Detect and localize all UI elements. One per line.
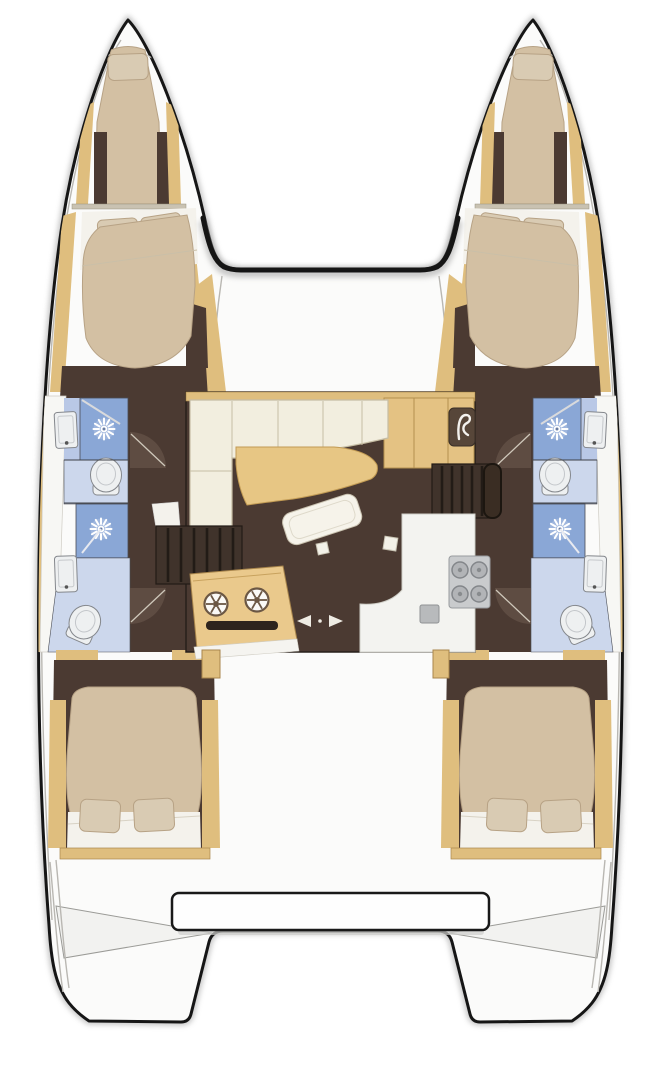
stbd-fwd-washbasin-icon [583, 411, 607, 448]
port-forepeak-pillow [108, 53, 149, 80]
stove-burner-icon-2 [471, 562, 487, 578]
stbd-forepeak [475, 47, 589, 210]
faucet-icon [449, 408, 475, 446]
port-aft-washbasin-icon [54, 556, 77, 593]
stbd-forward-bulkhead [475, 204, 589, 209]
starboard-stairs-handrail [484, 464, 501, 518]
stbd-aft-rail-left [595, 700, 613, 848]
stbd-aft-pillow-right [486, 798, 528, 832]
port-fwd-toilet-icon [91, 458, 122, 495]
port-aft-rail-left [48, 700, 66, 848]
stbd-fwd-toilet-icon [540, 458, 571, 495]
stbd-heads [473, 396, 625, 652]
saloon [152, 392, 501, 678]
aux-sink [420, 605, 439, 623]
port-aft-cabin-aft-wall [60, 848, 210, 859]
stbd-forepeak-pillow [513, 53, 554, 80]
floor-plan-svg [0, 0, 661, 1080]
port-fwd-shower-head-icon [94, 419, 115, 440]
door-post-port [202, 650, 220, 678]
galley-sink-unit [190, 566, 299, 659]
catamaran-floor-plan [0, 0, 661, 1080]
stbd-fwd-double-berth [466, 215, 579, 368]
door-post-starboard [433, 650, 449, 678]
stbd-aft-washbasin-icon [583, 556, 606, 593]
forward-crossbeam [203, 218, 458, 270]
stove-burner-icon-4 [471, 586, 487, 602]
stbd-aft-cabin-aft-wall [451, 848, 601, 859]
stbd-aft-pillow-left [540, 799, 582, 833]
sink-drain-icon-2 [246, 589, 269, 612]
stove-burner-icon-3 [452, 586, 468, 602]
stbd-aft-rail-right [441, 700, 459, 848]
port-fwd-washbasin-icon [54, 411, 78, 448]
port-aft-double-berth [67, 687, 202, 816]
cockpit-bench-seat [172, 893, 489, 930]
port-forepeak-locker-left [94, 132, 107, 204]
port-forepeak [72, 47, 186, 210]
galley-front-slot [206, 621, 278, 630]
four-burner-stove [449, 556, 490, 608]
port-forward-bulkhead [72, 204, 186, 209]
table-leg-pad-1 [383, 536, 398, 551]
port-aft-cabin [48, 650, 220, 859]
port-aft-pillow-left [79, 799, 121, 833]
stbd-forepeak-locker-left [554, 132, 567, 204]
port-aft-pillow-right [133, 798, 175, 832]
table-leg-pad-2 [316, 542, 329, 555]
crossbeam-shadow [203, 221, 458, 273]
stbd-fwd-shower-head-icon [547, 419, 568, 440]
stove-burner-icon-1 [452, 562, 468, 578]
stbd-aft-double-berth [460, 687, 595, 816]
port-fwd-double-berth [82, 215, 195, 368]
port-aft-rail-right [202, 700, 220, 848]
port-stairs-landing-pad [152, 502, 180, 528]
stbd-aft-cabin [441, 650, 613, 859]
stairs-to-starboard-hull [432, 464, 501, 518]
sink-drain-icon-1 [205, 593, 228, 616]
